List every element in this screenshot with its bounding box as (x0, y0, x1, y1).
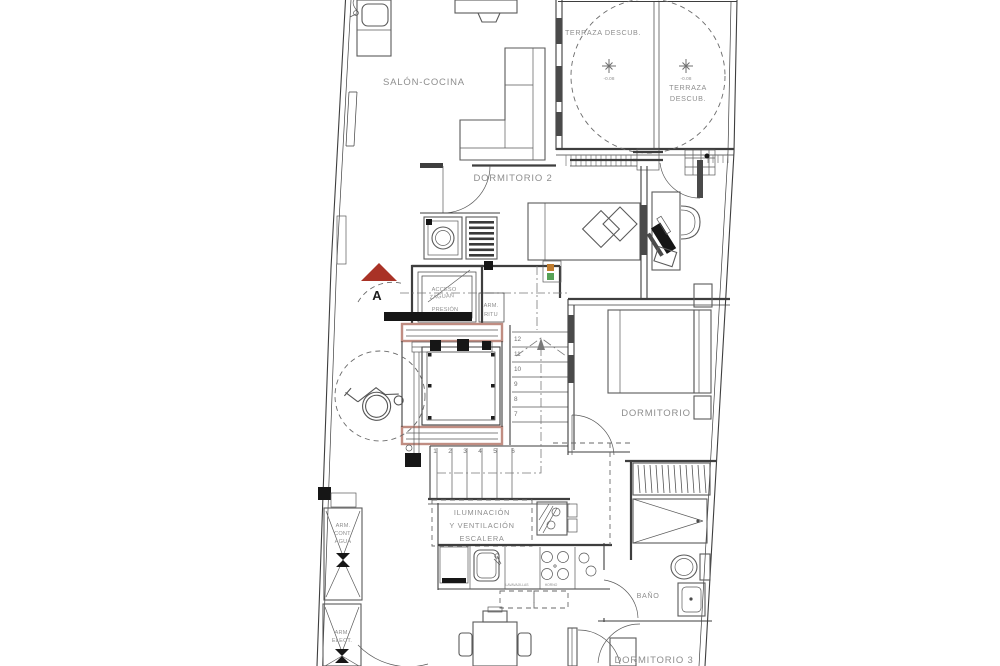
chair (459, 633, 472, 656)
dormitorio-area: DORMITORIO (568, 284, 730, 455)
bed-dormitorio (608, 310, 694, 393)
arm-ritu-label-1: ARM. (484, 303, 499, 309)
elevation-marker-2 (679, 59, 693, 73)
acceso-label-1: ACCESO (432, 287, 457, 293)
terraza-main-label: TERRAZA DESCUB. (565, 28, 641, 37)
terrace-door-leaf (697, 160, 703, 198)
elevator-band-top (402, 324, 502, 341)
nightstand (694, 396, 711, 419)
window-left-wall (346, 92, 357, 146)
dormitorio-label: DORMITORIO (621, 408, 691, 419)
chair (518, 633, 531, 656)
arm-cont-label-1: ARM. (336, 523, 351, 529)
terraza-small-label-2: DESCUB. (670, 94, 706, 103)
elevator-car (422, 347, 500, 425)
stair-num-5: 5 (493, 448, 497, 455)
horno-label: HORNO (545, 583, 558, 587)
stair-num-12: 12 (514, 336, 522, 343)
stair-num-6: 6 (511, 448, 515, 455)
undercounter-appliance (534, 591, 568, 608)
acceso-label-2: ZAGUAN (429, 293, 454, 301)
pillow (603, 207, 637, 241)
signal-green-dot (547, 273, 554, 280)
door-leaf (568, 628, 577, 666)
sofa (460, 48, 545, 160)
desk-chair (681, 206, 700, 239)
arm-ritu-label-2: RITU (484, 312, 498, 318)
chair-top (478, 13, 500, 22)
elevator-band-bottom (402, 427, 502, 444)
stair-num-4: 4 (478, 448, 482, 455)
elevation-value-1: -0.08 (604, 76, 615, 81)
signal-orange-dot (547, 264, 554, 271)
closet-bowtie (336, 553, 350, 567)
door-arc-dormitorio (572, 415, 614, 455)
salon-cocina-area: SALÓN-COCINA (346, 0, 545, 160)
terraza-small-label-1: TERRAZA (669, 83, 707, 92)
escalera-label-1: ILUMINACIÓN (454, 508, 510, 517)
arm-elect-label-2: ELECT. (332, 638, 352, 644)
terraza-area: TERRAZA DESCUB. -0.08 -0.08 TERRAZA DESC… (556, 0, 734, 170)
arm-elect-label-1: ARM. (335, 630, 350, 636)
arm-cont-label-3: AGUA (335, 539, 352, 545)
stair-num-3: 3 (463, 448, 467, 455)
arm-cont-label-2: CONT. (334, 531, 352, 537)
dining-side-table (455, 0, 517, 13)
stair-num-7: 7 (514, 411, 518, 418)
pillow (583, 211, 620, 248)
bano-label: BAÑO (637, 591, 660, 600)
fridge (440, 547, 468, 583)
elevation-marker-1 (602, 59, 616, 73)
lavavajillas-label: LAVAVAJILLAS (505, 583, 529, 587)
door-arc-bano (604, 580, 638, 618)
salon-cocina-label: SALÓN-COCINA (383, 77, 465, 88)
shower (633, 499, 707, 543)
stair-num-10: 10 (514, 366, 522, 373)
dormitorio3-label: DORMITORIO 3 (614, 655, 693, 666)
stair-num-1: 1 (433, 448, 437, 455)
escalera-label-3: ESCALERA (459, 534, 504, 543)
stove-burners (542, 552, 569, 580)
escalera-label-2: Y VENTILACIÓN (449, 521, 514, 530)
floor-plan-page: TERRAZA DESCUB. -0.08 -0.08 TERRAZA DESC… (0, 0, 1000, 666)
wall-post (484, 261, 493, 270)
elevation-value-2: -0.08 (681, 76, 692, 81)
stair-num-8: 8 (514, 396, 518, 403)
dining-area (358, 607, 620, 666)
nightstand (694, 284, 712, 307)
stair-direction-line (437, 345, 541, 473)
closets-left: ARM. CONT. AGUA ARM. ELECT. (318, 487, 362, 666)
terraza-turning-circle (571, 0, 725, 153)
thick-wall-bar (384, 312, 472, 321)
bano-area: BAÑO DORMITORIO 3 (598, 461, 716, 666)
stair-num-2: 2 (448, 448, 452, 455)
undercounter-appliance (500, 591, 534, 608)
chair (483, 611, 507, 622)
closet-bowtie (335, 649, 349, 663)
shaft-dot (705, 154, 710, 159)
section-marker-letter: A (372, 288, 382, 303)
kitchen-sink-top (362, 4, 388, 26)
wheelchair-icon (343, 367, 405, 429)
dormitorio2-label: DORMITORIO 2 (473, 173, 552, 184)
section-marker-triangle (361, 263, 397, 281)
headboard (694, 310, 711, 393)
door-arc-hall (358, 645, 428, 666)
acceso-label-3: PRESIÓN (432, 306, 459, 313)
dining-table (473, 622, 517, 666)
appliance-box (537, 502, 567, 535)
stair-num-9: 9 (514, 381, 518, 388)
floor-plan-drawing: TERRAZA DESCUB. -0.08 -0.08 TERRAZA DESC… (0, 0, 1000, 666)
